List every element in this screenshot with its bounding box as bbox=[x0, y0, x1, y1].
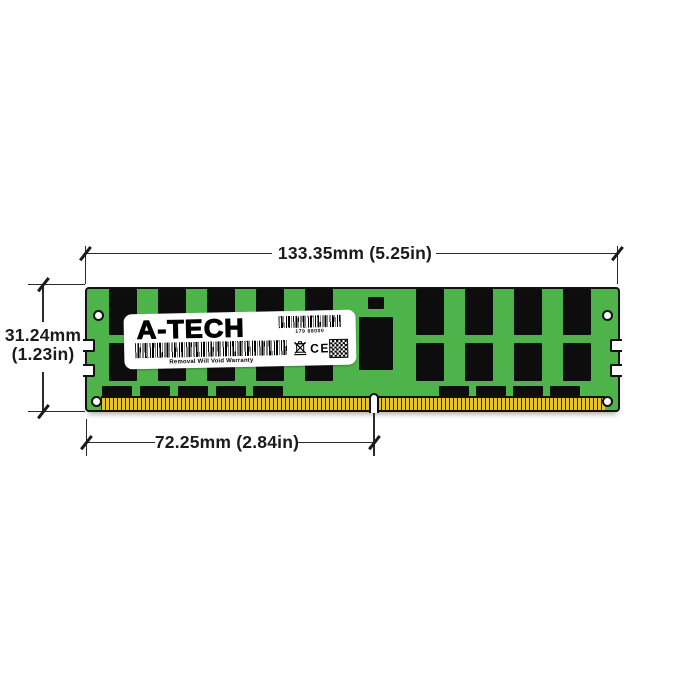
memory-chip bbox=[216, 386, 246, 396]
mounting-hole-bottom-right bbox=[602, 396, 613, 407]
edge-notch-left-upper bbox=[83, 339, 95, 352]
memory-chip bbox=[359, 317, 393, 370]
pin-dimension-text: 72.25mm (2.84in) bbox=[142, 432, 312, 453]
width-dim-line-right bbox=[436, 253, 618, 255]
ram-module: A-TECH 179 88000 Removal Will Void Warra… bbox=[85, 287, 620, 412]
memory-chip bbox=[140, 386, 170, 396]
memory-chip bbox=[563, 343, 591, 381]
memory-chip bbox=[476, 386, 506, 396]
weee-crossed-bin-icon bbox=[293, 340, 307, 356]
memory-chip bbox=[465, 289, 493, 335]
edge-notch-left-lower bbox=[83, 364, 95, 377]
key-notch bbox=[369, 393, 379, 413]
serial-number: 179 88000 bbox=[279, 327, 341, 334]
height-dim-line-bottom bbox=[42, 372, 44, 412]
height-dimension-text: 31.24mm (1.23in) bbox=[0, 326, 86, 364]
gold-pin-strip bbox=[101, 396, 605, 410]
memory-chip bbox=[416, 343, 444, 381]
memory-chip bbox=[514, 343, 542, 381]
edge-notch-right-lower bbox=[610, 364, 622, 377]
width-dimension-text: 133.35mm (5.25in) bbox=[270, 243, 440, 264]
height-dim-line-top bbox=[42, 286, 44, 322]
memory-chip bbox=[563, 289, 591, 335]
edge-notch-right-upper bbox=[610, 339, 622, 352]
qr-code bbox=[329, 339, 348, 358]
pin-dim-extension-right bbox=[373, 409, 375, 456]
memory-chip bbox=[514, 289, 542, 335]
mounting-hole-bottom-left bbox=[91, 396, 102, 407]
memory-chip bbox=[102, 386, 132, 396]
memory-chip bbox=[416, 289, 444, 335]
height-dimension-in: (1.23in) bbox=[0, 345, 86, 364]
main-barcode bbox=[135, 340, 287, 358]
warranty-text: Removal Will Void Warranty bbox=[135, 357, 287, 366]
memory-chip bbox=[253, 386, 283, 396]
mounting-hole-top-right bbox=[602, 310, 613, 321]
height-dimension-mm: 31.24mm bbox=[0, 326, 86, 345]
memory-chip bbox=[178, 386, 208, 396]
memory-chip bbox=[439, 386, 469, 396]
memory-chip bbox=[368, 297, 384, 309]
memory-chip bbox=[550, 386, 580, 396]
height-dim-extension-bottom bbox=[28, 411, 85, 413]
ce-mark: CE bbox=[310, 341, 330, 356]
width-dim-line-left bbox=[86, 253, 272, 255]
memory-chip bbox=[465, 343, 493, 381]
height-dim-extension-top bbox=[28, 284, 85, 286]
serial-barcode bbox=[279, 315, 341, 328]
product-label: A-TECH 179 88000 Removal Will Void Warra… bbox=[123, 310, 356, 370]
product-diagram-canvas: 133.35mm (5.25in) 31.24mm (1.23in) A-TEC… bbox=[0, 0, 700, 700]
memory-chip bbox=[513, 386, 543, 396]
mounting-hole-top-left bbox=[93, 310, 104, 321]
